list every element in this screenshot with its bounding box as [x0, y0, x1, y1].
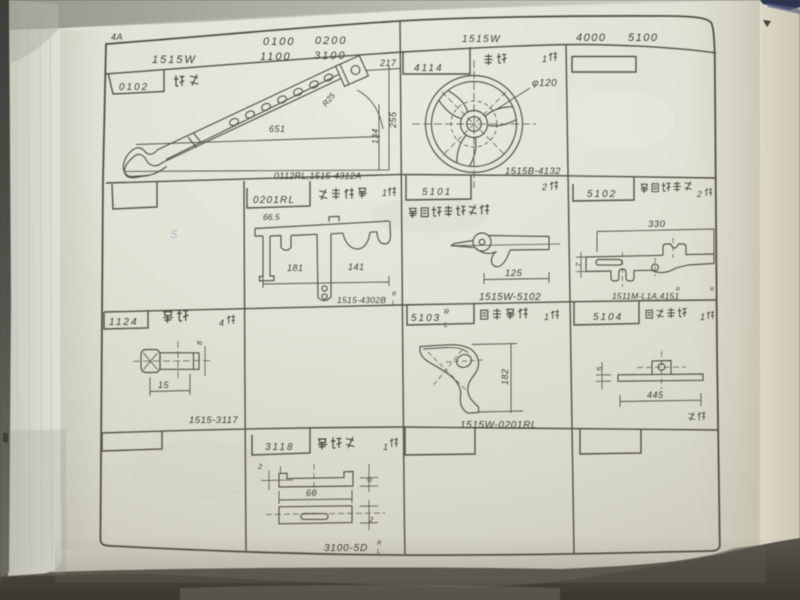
svg-text:0100: 0100	[263, 36, 295, 48]
svg-text:1515W: 1515W	[152, 54, 197, 66]
svg-text:1511M-L1A,4151: 1511M-L1A,4151	[612, 291, 679, 301]
svg-text:255: 255	[388, 111, 398, 129]
svg-text:66.5: 66.5	[263, 212, 280, 222]
svg-text:R: R	[710, 287, 714, 293]
svg-text:L: L	[392, 301, 395, 307]
svg-text:1515-3117: 1515-3117	[189, 415, 238, 426]
svg-text:217: 217	[379, 58, 397, 68]
svg-text:1124: 1124	[109, 317, 139, 328]
svg-text:0102: 0102	[119, 82, 149, 93]
svg-text:1515W: 1515W	[462, 34, 501, 45]
svg-text:330: 330	[648, 219, 666, 230]
svg-text:5101: 5101	[422, 187, 452, 198]
svg-text:R: R	[377, 541, 382, 547]
svg-text:60: 60	[306, 488, 317, 498]
svg-text:4A: 4A	[111, 32, 123, 42]
svg-text:1: 1	[700, 312, 705, 322]
svg-text:125: 125	[505, 268, 523, 279]
svg-text:1100: 1100	[260, 51, 292, 63]
svg-text:2: 2	[257, 462, 263, 471]
svg-text:181: 181	[287, 263, 304, 273]
svg-text:1: 1	[382, 188, 387, 198]
svg-text:1515-4302B: 1515-4302B	[337, 295, 386, 305]
svg-text:1515W-0201RL: 1515W-0201RL	[460, 420, 537, 431]
svg-text:1515W-5102: 1515W-5102	[479, 292, 541, 303]
svg-text:R: R	[676, 287, 680, 293]
svg-text:R: R	[392, 292, 397, 298]
svg-text:5104: 5104	[593, 312, 623, 323]
svg-text:0112RL,1515-4312A: 0112RL,1515-4312A	[274, 171, 362, 181]
svg-text:5100: 5100	[628, 32, 658, 44]
svg-text:R: R	[444, 309, 449, 316]
svg-text:15: 15	[158, 380, 170, 390]
svg-text:651: 651	[269, 124, 286, 134]
svg-text:5102: 5102	[587, 189, 617, 200]
svg-text:5: 5	[171, 229, 178, 241]
svg-text:2: 2	[696, 189, 702, 199]
svg-text:L: L	[444, 322, 448, 329]
svg-text:3100: 3100	[314, 50, 346, 62]
svg-text:182: 182	[500, 368, 510, 385]
svg-text:1: 1	[383, 442, 388, 452]
svg-text:5103: 5103	[411, 313, 441, 324]
svg-text:2: 2	[541, 182, 547, 192]
svg-text:3118: 3118	[265, 442, 295, 453]
svg-text:1515B-4132: 1515B-4132	[505, 166, 561, 177]
svg-text:1: 1	[542, 54, 547, 64]
svg-text:0200: 0200	[315, 35, 347, 47]
svg-text:1: 1	[544, 312, 549, 322]
svg-text:4114: 4114	[414, 63, 444, 74]
svg-text:3100-5D: 3100-5D	[324, 543, 368, 554]
svg-text:φ120: φ120	[532, 78, 557, 89]
svg-text:4000: 4000	[576, 32, 606, 44]
svg-text:0201RL: 0201RL	[253, 195, 295, 206]
svg-text:141: 141	[348, 262, 365, 272]
svg-text:4: 4	[219, 318, 224, 328]
svg-text:445: 445	[647, 390, 664, 400]
svg-text:L: L	[377, 549, 380, 555]
